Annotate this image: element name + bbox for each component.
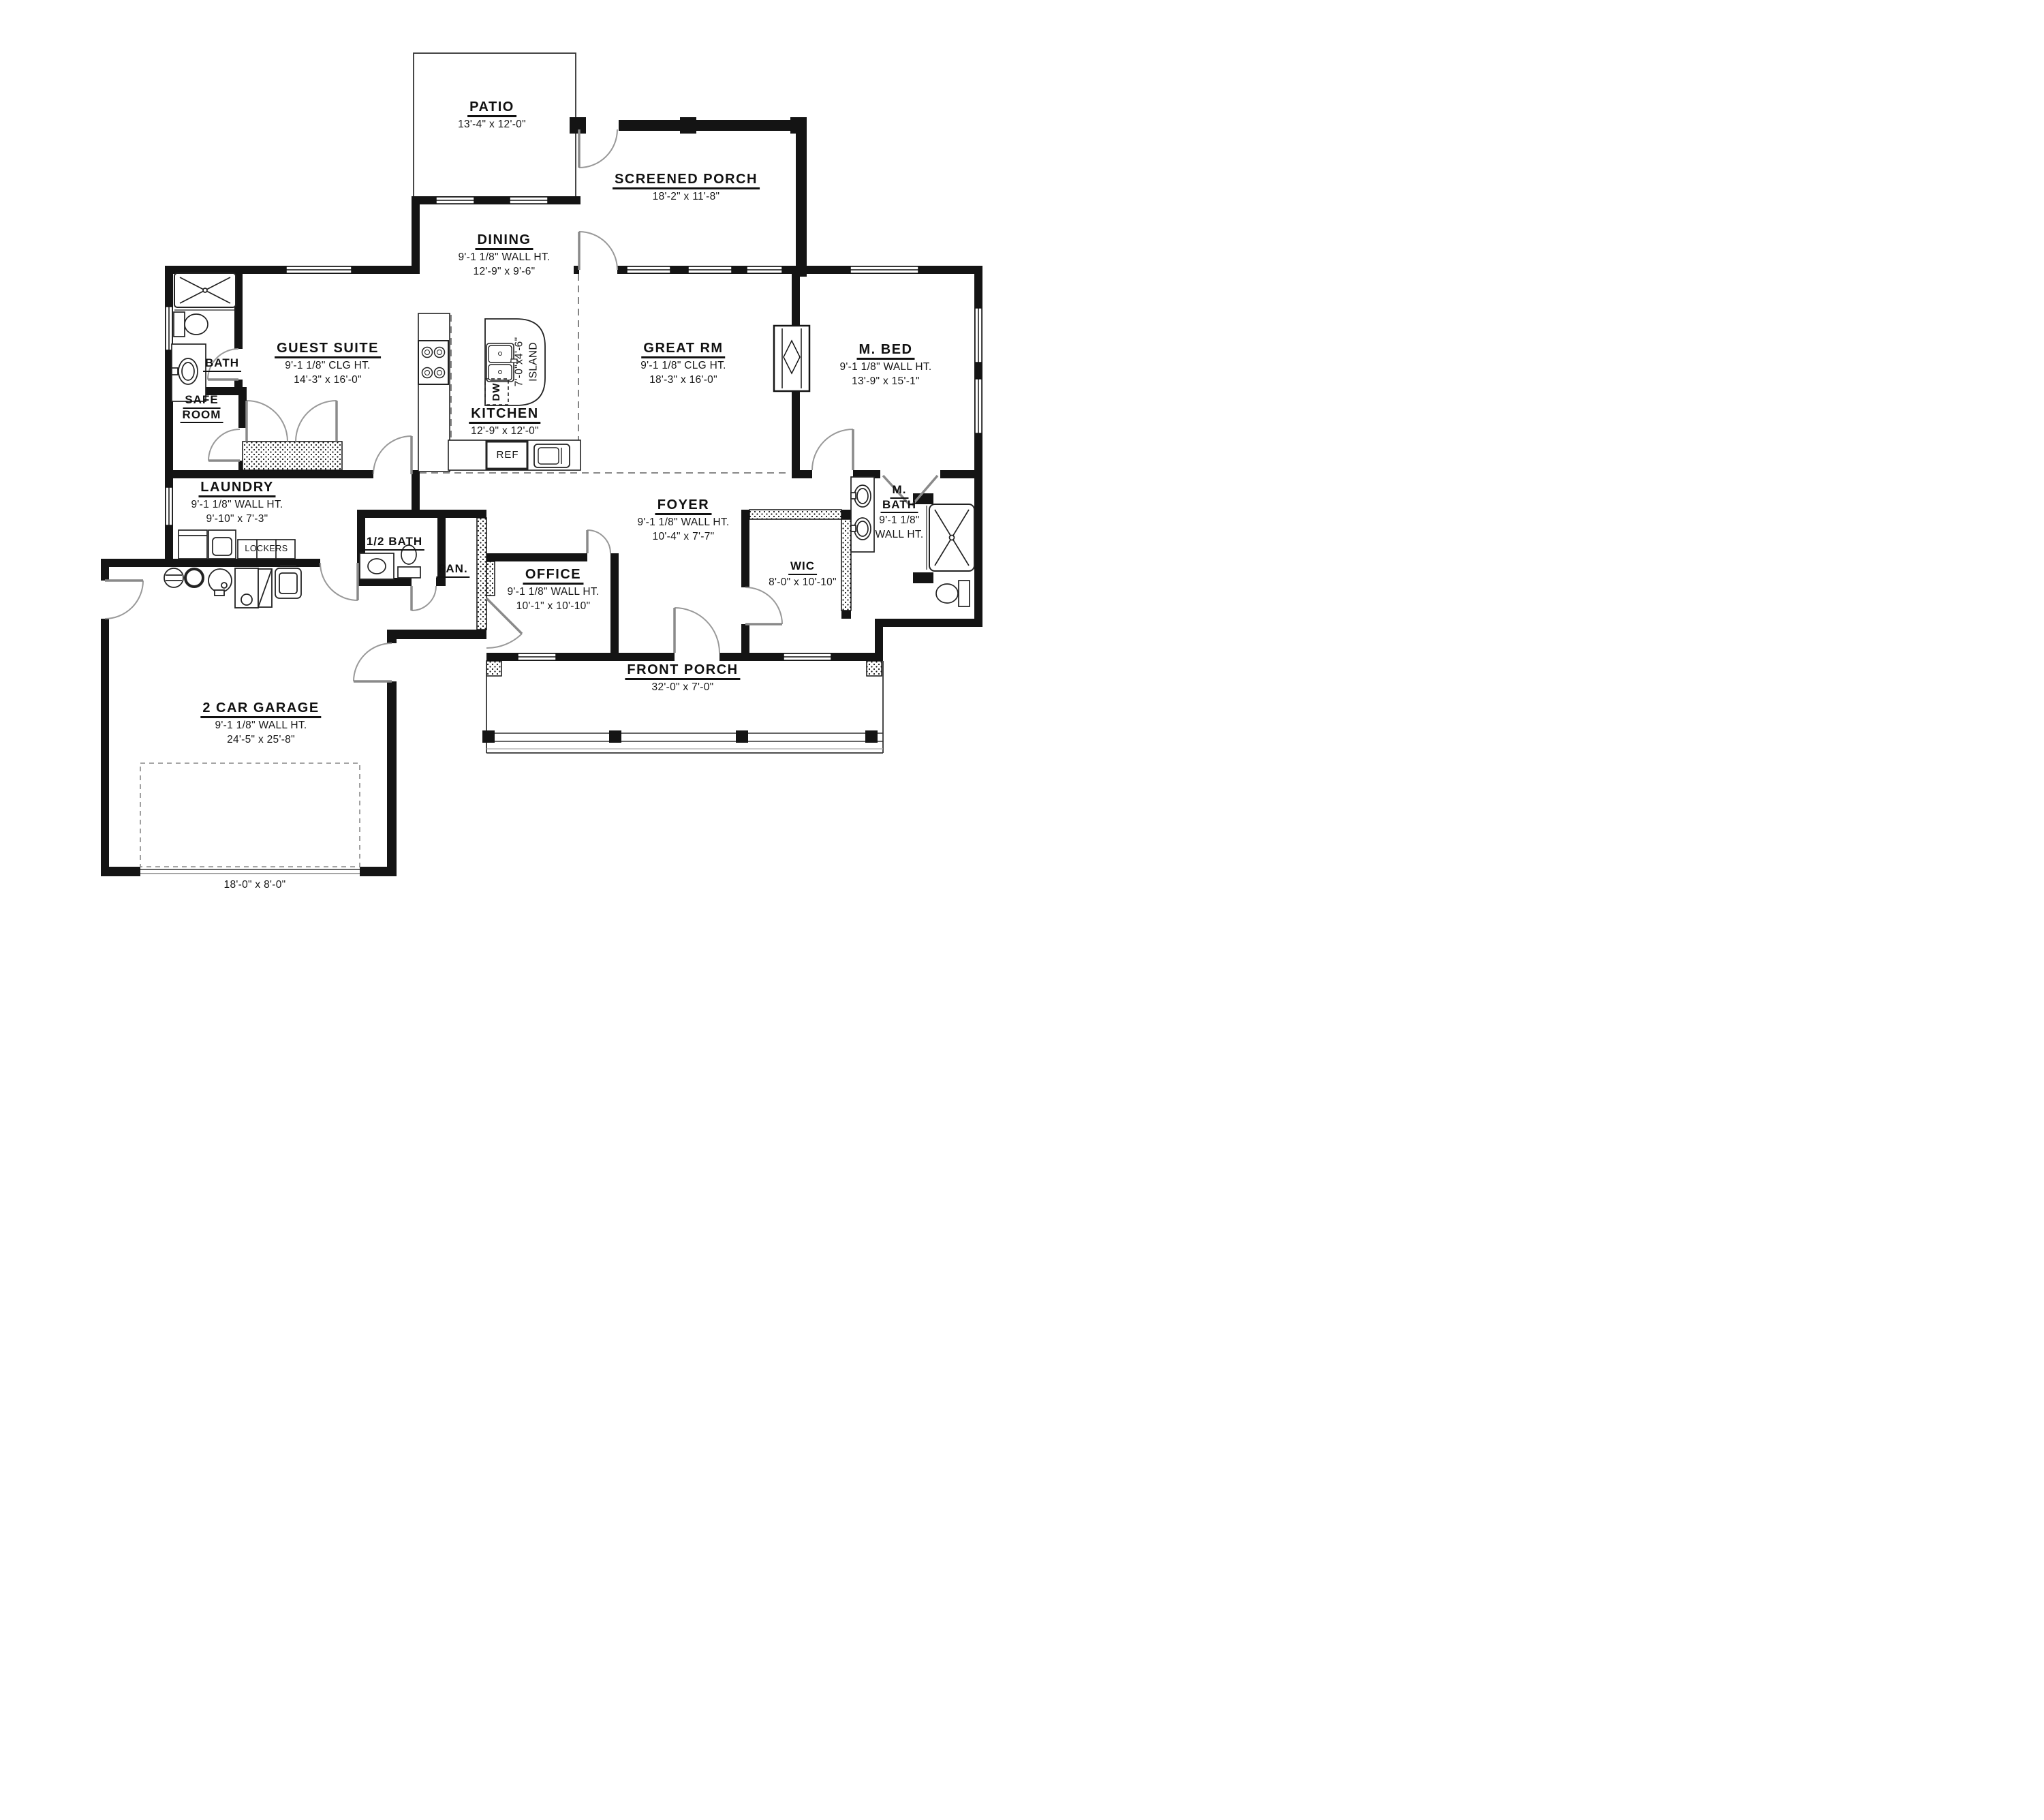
great-rm-note: 9'-1 1/8" CLG HT. [640,360,726,373]
wic-wall-hatch [749,510,841,519]
door-arc [208,429,240,461]
half-bath-name: 1/2 BATH [365,536,424,551]
wic-name: WIC [788,560,817,575]
island-dims: 7'-0"x4'-6" [513,337,526,387]
kitchen-sink-bowl [538,448,559,464]
master-sink-faucet [851,525,856,531]
great-rm-dims: 18'-3" x 16'-0" [640,374,726,387]
guest-suite-dims: 14'-3" x 16'-0" [275,374,381,387]
wall [741,624,749,653]
room-label-safe-room: SAFE ROOM [181,394,223,423]
room-label-bath: BATH [203,357,241,372]
room-label-dining: DINING 9'-1 1/8" WALL HT. 12'-9" x 9'-6" [458,232,550,278]
door-arc [105,581,143,619]
room-label-kitchen: KITCHEN 12'-9" x 12'-0" [469,406,540,438]
patio-dims: 13'-4" x 12'-0" [458,119,526,132]
garage-note: 9'-1 1/8" WALL HT. [200,720,321,732]
burner-inner [437,350,442,355]
guest-suite-note: 9'-1 1/8" CLG HT. [275,360,381,373]
island-label: 7'-0"x4'-6" ISLAND [512,337,540,387]
room-label-wic: WIC 8'-0" x 10'-10" [769,560,837,589]
water-softener-tank [185,569,203,587]
room-label-m-bath: M. BATH 9'-1 1/8" WALL HT. [875,484,923,542]
wic-dims: 8'-0" x 10'-10" [769,576,837,589]
wall [792,470,812,478]
door-arc [587,530,610,553]
wall [238,395,247,428]
floor-plan-drawing [0,0,1065,948]
pantry-name: PAN. [436,563,469,578]
fireplace [774,326,809,391]
garage-parking-dashed [140,763,360,867]
kitchen-dims: 12'-9" x 12'-0" [469,425,540,438]
master-toilet-tank [959,581,970,606]
dining-note: 9'-1 1/8" WALL HT. [458,251,550,264]
m-bed-note: 9'-1 1/8" WALL HT. [839,361,931,374]
room-label-m-bed: M. BED 9'-1 1/8" WALL HT. 13'-9" x 15'-1… [839,342,931,388]
stove [418,341,448,384]
dining-name: DINING [475,232,533,250]
foyer-name: FOYER [655,497,711,515]
wall [387,630,486,639]
door-arc [354,643,392,681]
island-name: ISLAND [527,337,540,387]
great-rm-name: GREAT RM [641,341,725,358]
wall [841,510,851,519]
front-porch-name: FRONT PORCH [625,662,740,680]
laundry-dims: 9'-10" x 7'-3" [191,513,283,526]
safe-room-line1: SAFE [183,394,220,409]
door-arc [675,608,719,653]
master-sink-bowl [857,489,868,504]
room-label-foyer: FOYER 9'-1 1/8" WALL HT. 10'-4" x 7'-7" [637,497,729,543]
door-arc [486,634,522,648]
guest-bath-fixtures [172,273,236,401]
foyer-note: 9'-1 1/8" WALL HT. [637,516,729,529]
wall [610,553,619,653]
porch-post [680,117,696,134]
wall [446,510,486,518]
wall [719,653,745,661]
guest-closet [243,442,342,470]
guest-sink-faucet [172,368,178,375]
wall [101,559,173,567]
laundry-name: LAUNDRY [198,480,276,497]
dining-dims: 12'-9" x 9'-6" [458,266,550,279]
wall [165,559,320,567]
door-arc [412,586,436,611]
dw-label: DW [491,383,503,401]
room-label-great-rm: GREAT RM 9'-1 1/8" CLG HT. 18'-3" x 16'-… [640,341,726,386]
door-arc [579,129,617,168]
safe-room-line2: ROOM [181,409,223,424]
door-arc [745,587,782,624]
wall [165,470,373,478]
guest-sink-bowl [182,363,194,380]
wall [619,653,675,661]
island-sink-drain [499,352,502,356]
door-arc [579,232,617,270]
room-label-pantry: PAN. [436,563,469,578]
m-bath-line1: M. [891,484,909,499]
office-wall-hatch [486,561,495,596]
dw-text: DW [491,383,503,401]
patio-name: PATIO [467,99,516,117]
wall [913,572,933,583]
garage-name: 2 CAR GARAGE [200,700,321,718]
dryer-door [213,538,232,555]
washer [179,530,207,559]
m-bed-dims: 13'-9" x 15'-1" [839,375,931,388]
garage-door-dims: 18'-0" x 8'-0" [224,879,286,892]
wall [875,619,982,627]
foyer-dims: 10'-4" x 7'-7" [637,531,729,544]
half-bath-sink [368,559,386,574]
fireplace-box [774,326,809,391]
m-bath-note2: WALL HT. [875,529,923,542]
ref-label: REF [497,449,519,461]
door-arc [296,401,337,442]
furnace-dial [241,594,252,605]
porch-post-hatch [486,661,501,676]
lockers-text: LOCKERS [245,544,288,554]
burner-inner [425,371,430,375]
room-label-guest-suite: GUEST SUITE 9'-1 1/8" CLG HT. 14'-3" x 1… [275,341,381,386]
master-toilet-bowl [936,584,958,603]
door-arc [812,429,853,470]
m-bath-note1: 9'-1 1/8" [875,514,923,527]
lockers-label: LOCKERS [245,544,288,554]
burner-inner [425,350,430,355]
room-label-screened-porch: SCREENED PORCH 18'-2" x 11'-8" [613,172,760,204]
room-label-patio: PATIO 13'-4" x 12'-0" [458,99,526,132]
room-label-laundry: LAUNDRY 9'-1 1/8" WALL HT. 9'-10" x 7'-3… [191,480,283,525]
porch-column [865,730,878,743]
floor-plan: PATIO 13'-4" x 12'-0" SCREENED PORCH 18'… [0,0,1065,948]
screened-porch-dims: 18'-2" x 11'-8" [613,191,760,204]
laundry-note: 9'-1 1/8" WALL HT. [191,499,283,512]
office-note: 9'-1 1/8" WALL HT. [507,586,599,599]
water-softener [164,568,183,587]
bath-name: BATH [203,357,241,372]
door-arc [247,401,288,442]
wall [841,611,851,619]
wall [412,196,420,274]
wall [940,470,982,478]
kitchen-counter-left [418,313,450,472]
water-heater [208,569,232,592]
wall [387,681,397,876]
porch-beam [619,120,807,131]
wic-wall-hatch [841,519,851,611]
wall [741,510,749,587]
m-bath-line2: BATH [880,499,918,514]
ref-text: REF [497,449,519,461]
porch-post-hatch [867,661,882,676]
island-sink-drain [499,371,502,374]
screened-porch-name: SCREENED PORCH [613,172,760,189]
room-label-front-porch: FRONT PORCH 32'-0" x 7'-0" [625,662,740,694]
master-shower-drain [950,536,955,540]
water-heater-valve [221,583,227,588]
door-arc [373,436,412,474]
guest-shower-drain [203,288,207,292]
m-bed-name: M. BED [856,342,914,360]
porch-column [736,730,748,743]
office-name: OFFICE [523,567,583,585]
room-label-half-bath: 1/2 BATH [365,536,424,551]
porch-post [570,117,586,134]
garage-dims: 24'-5" x 25'-8" [200,734,321,747]
room-label-garage: 2 CAR GARAGE 9'-1 1/8" WALL HT. 24'-5" x… [200,700,321,746]
pantry-wall-hatch [477,518,486,630]
guest-toilet-tank [174,312,185,337]
half-bath-toilet-tank [398,567,420,578]
wall [486,553,587,561]
garage-door-dims-label: 18'-0" x 8'-0" [224,878,286,892]
water-heater-base [215,590,224,596]
office-dims: 10'-1" x 10'-10" [507,600,599,613]
porch-beam [796,120,807,277]
master-sink-faucet [851,493,856,499]
guest-toilet-bowl [185,314,208,335]
porch-column [609,730,621,743]
guest-suite-name: GUEST SUITE [275,341,381,358]
kitchen-name: KITCHEN [469,406,540,424]
front-porch-dims: 32'-0" x 7'-0" [625,681,740,694]
wall [357,510,446,518]
door-arc [320,563,358,600]
room-label-office: OFFICE 9'-1 1/8" WALL HT. 10'-1" x 10'-1… [507,567,599,613]
wall [101,619,109,876]
wall [101,867,140,876]
porch-column [482,730,495,743]
master-sink-bowl [857,521,868,536]
wall [101,559,109,581]
utility-sink-bowl [279,573,297,593]
wall [617,266,982,274]
burner-inner [437,371,442,375]
